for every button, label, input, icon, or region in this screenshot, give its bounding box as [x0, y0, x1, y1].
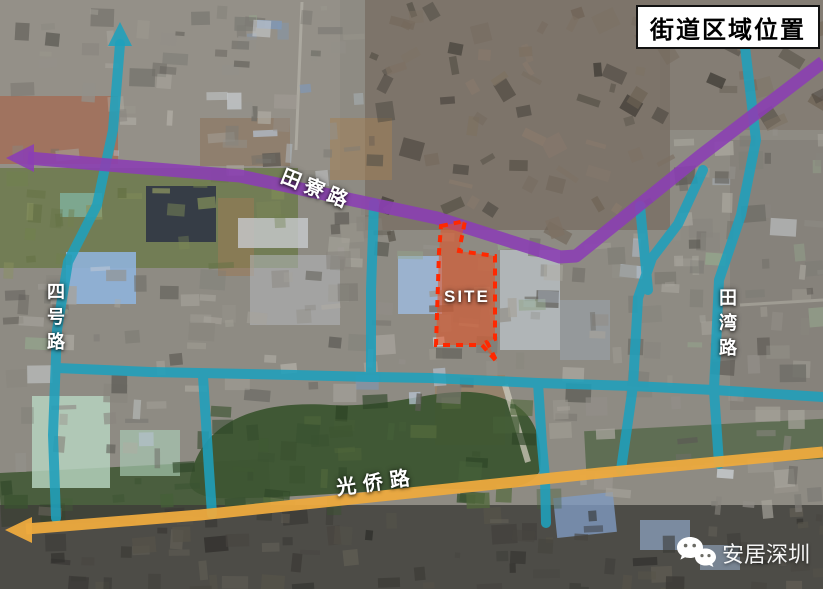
map-building-block: [169, 353, 183, 366]
map-building-block: [331, 41, 346, 53]
map-building-block: [717, 469, 734, 479]
map-building-block: [264, 355, 276, 363]
map-building-block: [280, 441, 297, 461]
map-building-block: [689, 239, 701, 248]
map-building-block: [160, 32, 177, 46]
map-building-block: [816, 514, 823, 521]
map-building-block: [808, 306, 823, 327]
map-building-block: [334, 526, 353, 546]
map-building-block: [399, 422, 406, 432]
map-building-block: [24, 228, 36, 240]
map-building-block: [262, 543, 280, 552]
map-building-block: [123, 442, 138, 453]
map-building-block: [586, 397, 608, 416]
map-building-block: [40, 52, 52, 57]
map-building-block: [762, 259, 770, 269]
map-building-block: [584, 525, 603, 532]
map-building-block: [760, 307, 767, 317]
map-building-block: [622, 575, 633, 589]
map-building-block: [466, 492, 490, 508]
map-building-block: [38, 58, 57, 69]
map-building-block: [800, 318, 810, 335]
map-building-block: [26, 189, 45, 198]
map-building-block: [281, 514, 290, 524]
map-building-block: [300, 84, 312, 93]
map-building-block: [780, 364, 807, 382]
map-building-block: [635, 66, 645, 76]
map-building-block: [815, 153, 823, 167]
map-building-block: [674, 139, 694, 147]
map-building-block: [343, 549, 359, 566]
map-building-block: [173, 461, 195, 473]
map-building-block: [135, 478, 142, 484]
map-building-block: [807, 487, 823, 502]
map-building-block: [259, 438, 269, 452]
map-building-block: [496, 551, 508, 562]
map-building-block: [121, 546, 132, 558]
map-building-block: [343, 34, 365, 40]
map-building-block: [223, 140, 247, 149]
map-building-block: [217, 6, 228, 20]
map-building-block: [5, 290, 26, 301]
map-building-block: [766, 345, 790, 359]
map-building-block: [410, 425, 436, 438]
map-building-block: [604, 558, 615, 575]
map-building-block: [152, 188, 170, 193]
map-building-block: [458, 461, 482, 482]
map-building-block: [596, 429, 615, 440]
map-building-block: [533, 569, 560, 578]
map-building-block: [160, 494, 173, 508]
map-building-block: [305, 305, 316, 311]
map-building-block: [765, 153, 771, 164]
map-building-block: [328, 337, 342, 349]
map-building-block: [440, 96, 455, 104]
map-building-block: [15, 453, 26, 472]
map-building-block: [103, 577, 112, 589]
map-building-block: [423, 582, 435, 589]
map-building-block: [114, 299, 121, 308]
map-building-block: [94, 334, 100, 341]
map-building-block: [258, 111, 272, 124]
map-building-block: [111, 375, 127, 393]
map-building-block: [147, 401, 167, 409]
map-building-block: [6, 369, 27, 388]
map-building-block: [206, 92, 227, 100]
map-building-block: [90, 9, 99, 15]
map-building-block: [715, 171, 730, 184]
map-building-block: [181, 294, 200, 306]
map-building-block: [414, 567, 426, 581]
map-building-block: [246, 424, 259, 440]
map-building-block: [232, 41, 250, 50]
map-building-block: [321, 6, 328, 11]
map-building-block: [338, 283, 358, 301]
map-building-block: [453, 164, 470, 175]
map-building-block: [60, 498, 73, 511]
map-building-block: [136, 20, 150, 39]
page-title: 街道区域位置: [636, 5, 820, 49]
map-building-block: [788, 410, 805, 429]
map-building-block: [45, 32, 60, 47]
map-building-block: [512, 529, 535, 542]
map-building-block: [374, 334, 396, 355]
map-building-block: [424, 153, 440, 167]
map-building-block: [612, 265, 636, 278]
map-building-block: [455, 552, 461, 558]
map-building-block: [160, 286, 179, 300]
map-building-block: [510, 563, 516, 573]
map-building-block: [244, 389, 271, 403]
map-building-block: [187, 342, 206, 349]
map-building-block: [129, 68, 155, 87]
map-building-block: [125, 330, 141, 344]
map-building-block: [641, 305, 662, 323]
map-building-block: [747, 355, 760, 374]
road-label-tianwan: 田湾路: [714, 288, 740, 363]
map-building-block: [756, 407, 781, 422]
map-building-block: [745, 289, 765, 298]
map-building-block: [722, 193, 733, 213]
map-building-block: [291, 553, 303, 572]
map-building-block: [300, 10, 312, 25]
map-building-block: [162, 53, 188, 66]
map-building-block: [818, 134, 823, 147]
map-building-block: [27, 365, 52, 383]
map-building-block: [508, 298, 517, 317]
map-building-block: [348, 334, 369, 351]
map-building-block: [472, 451, 480, 457]
road-west-of-site: [371, 203, 374, 377]
map-building-block: [0, 480, 12, 495]
map-building-block: [247, 472, 253, 481]
map-building-block: [676, 258, 699, 266]
map-building-block: [296, 423, 320, 445]
map-building-block: [377, 302, 393, 315]
map-building-block: [45, 534, 66, 552]
map-building-block: [305, 271, 322, 281]
map-building-block: [538, 539, 554, 554]
map-building-block: [323, 149, 332, 157]
wechat-icon: [676, 536, 716, 570]
map-building-block: [478, 49, 491, 61]
map-building-block: [274, 214, 286, 228]
map-building-block: [227, 93, 242, 110]
map-building-block: [399, 359, 406, 365]
map-building-block: [794, 243, 806, 261]
map-building-block: [204, 535, 229, 552]
map-building-block: [175, 31, 184, 36]
map-building-block: [819, 526, 823, 536]
map-building-block: [193, 181, 207, 188]
map-building-block: [663, 536, 675, 553]
map-building-block: [589, 331, 605, 339]
map-building-block: [225, 320, 234, 328]
map-building-block: [666, 576, 685, 589]
street-area-location-map: 田寮路 四号路 田湾路 光侨路 SITE 街道区域位置 安居深圳: [0, 0, 823, 589]
satellite-map-canvas: [0, 0, 823, 589]
map-building-block: [156, 74, 172, 89]
map-building-block: [199, 269, 226, 290]
map-building-block: [761, 500, 773, 519]
map-building-block: [283, 492, 290, 500]
map-building-block: [516, 353, 524, 369]
map-building-block: [258, 452, 275, 462]
map-building-block: [4, 495, 28, 509]
map-building-block: [59, 414, 67, 425]
map-building-block: [397, 251, 423, 260]
map-building-block: [783, 436, 791, 452]
map-building-block: [68, 576, 89, 589]
map-building-block: [638, 571, 656, 579]
site-label: SITE: [444, 287, 504, 307]
map-building-block: [538, 290, 560, 303]
map-building-block: [300, 550, 320, 555]
map-building-block: [212, 420, 233, 434]
map-building-block: [354, 93, 364, 105]
map-building-block: [328, 122, 338, 139]
map-building-block: [569, 583, 581, 589]
map-building-block: [557, 406, 570, 411]
map-building-block: [773, 129, 778, 136]
map-building-block: [757, 430, 776, 436]
map-building-block: [10, 82, 34, 96]
map-building-block: [284, 272, 293, 282]
map-building-block: [139, 432, 154, 446]
map-building-block: [519, 46, 533, 57]
map-building-block: [644, 342, 661, 359]
map-building-block: [134, 275, 147, 292]
map-building-block: [512, 433, 537, 446]
map-building-block: [665, 282, 675, 287]
map-building-block: [362, 394, 387, 409]
map-building-block: [106, 444, 115, 453]
map-building-block: [289, 466, 305, 484]
map-building-block: [104, 412, 117, 424]
map-building-block: [188, 321, 215, 341]
map-building-block: [82, 43, 99, 56]
map-building-block: [172, 526, 190, 542]
map-building-block: [369, 136, 375, 146]
map-building-block: [21, 407, 34, 424]
map-building-block: [148, 574, 161, 589]
map-building-block: [252, 20, 271, 38]
map-building-block: [612, 347, 622, 364]
map-building-block: [356, 217, 369, 232]
map-building-block: [326, 251, 351, 269]
map-building-block: [786, 581, 802, 589]
map-building-block: [112, 494, 124, 503]
map-building-block: [26, 203, 33, 221]
map-building-block: [3, 262, 14, 279]
map-building-block: [18, 316, 44, 327]
map-building-block: [7, 171, 29, 186]
map-building-block: [261, 574, 285, 589]
map-building-block: [215, 49, 227, 57]
map-building-block: [593, 62, 602, 76]
map-building-block: [125, 419, 148, 423]
map-building-block: [26, 255, 36, 262]
map-building-block: [113, 150, 119, 156]
map-building-block: [607, 247, 625, 265]
map-building-block: [699, 315, 706, 323]
map-building-block: [633, 557, 658, 566]
map-building-block: [283, 537, 293, 545]
map-building-block: [273, 117, 290, 132]
map-building-block: [318, 27, 343, 34]
map-building-block: [375, 101, 395, 123]
map-building-block: [338, 448, 362, 461]
map-building-block: [510, 404, 516, 409]
map-building-block: [159, 66, 176, 75]
map-building-block: [118, 188, 127, 198]
map-building-block: [169, 549, 190, 556]
map-building-block: [191, 11, 210, 25]
map-building-block: [436, 348, 462, 359]
map-building-block: [320, 469, 328, 488]
map-building-block: [510, 551, 526, 564]
map-building-block: [574, 534, 588, 541]
map-building-block: [794, 494, 802, 512]
map-building-block: [365, 530, 373, 541]
map-building-block: [155, 448, 161, 468]
map-building-block: [296, 309, 311, 324]
map-building-block: [386, 513, 397, 529]
map-building-block: [247, 312, 268, 326]
map-building-block: [486, 361, 497, 378]
map-building-block: [493, 416, 519, 433]
map-building-block: [335, 405, 348, 421]
map-building-block: [701, 233, 720, 252]
map-building-block: [167, 203, 185, 216]
watermark: 安居深圳: [676, 536, 810, 570]
map-building-block: [813, 568, 823, 578]
map-building-block: [590, 312, 596, 331]
map-building-block: [788, 466, 798, 485]
map-building-block: [329, 425, 353, 438]
map-building-block: [197, 196, 216, 209]
map-building-block: [55, 213, 63, 226]
map-building-block: [409, 10, 424, 23]
map-building-block: [805, 260, 823, 276]
map-building-block: [798, 522, 809, 529]
map-building-block: [81, 557, 94, 565]
map-building-block: [308, 382, 318, 390]
map-building-block: [509, 160, 528, 171]
watermark-text: 安居深圳: [722, 537, 810, 569]
map-building-block: [106, 270, 126, 281]
map-building-block: [211, 406, 232, 418]
map-building-block: [222, 576, 248, 589]
map-building-block: [690, 289, 704, 307]
map-building-block: [190, 314, 211, 323]
map-building-block: [133, 400, 142, 420]
map-building-block: [234, 17, 256, 31]
map-building-block: [15, 23, 30, 41]
map-building-block: [807, 288, 814, 295]
map-building-block: [167, 110, 173, 125]
map-building-block: [544, 264, 564, 280]
map-building-block: [157, 528, 167, 534]
map-building-block: [770, 218, 797, 237]
map-building-block: [51, 553, 65, 563]
map-building-block: [436, 384, 461, 404]
road-label-sihao: 四号路: [42, 282, 68, 357]
map-building-block: [311, 50, 321, 56]
map-building-block: [304, 416, 321, 425]
map-building-block: [549, 422, 572, 439]
map-building-block: [333, 384, 356, 402]
map-building-block: [41, 23, 55, 30]
map-building-block: [234, 61, 250, 68]
map-building-block: [671, 396, 681, 409]
map-building-block: [46, 275, 62, 282]
map-building-block: [132, 536, 157, 554]
map-building-block: [490, 519, 509, 523]
map-building-block: [68, 209, 75, 227]
map-building-block: [225, 379, 250, 391]
map-building-block: [572, 267, 586, 282]
map-building-block: [531, 312, 541, 320]
map-building-block: [728, 166, 736, 179]
map-building-block: [378, 577, 400, 587]
map-building-block: [743, 501, 755, 508]
map-building-block: [366, 154, 383, 166]
map-building-block: [331, 224, 341, 234]
map-building-block: [274, 94, 298, 109]
map-building-block: [200, 294, 216, 301]
map-building-block: [771, 312, 783, 331]
map-building-block: [588, 510, 597, 521]
map-building-block: [81, 82, 96, 102]
map-building-block: [178, 236, 190, 250]
map-building-block: [226, 534, 250, 547]
map-building-block: [688, 342, 703, 347]
